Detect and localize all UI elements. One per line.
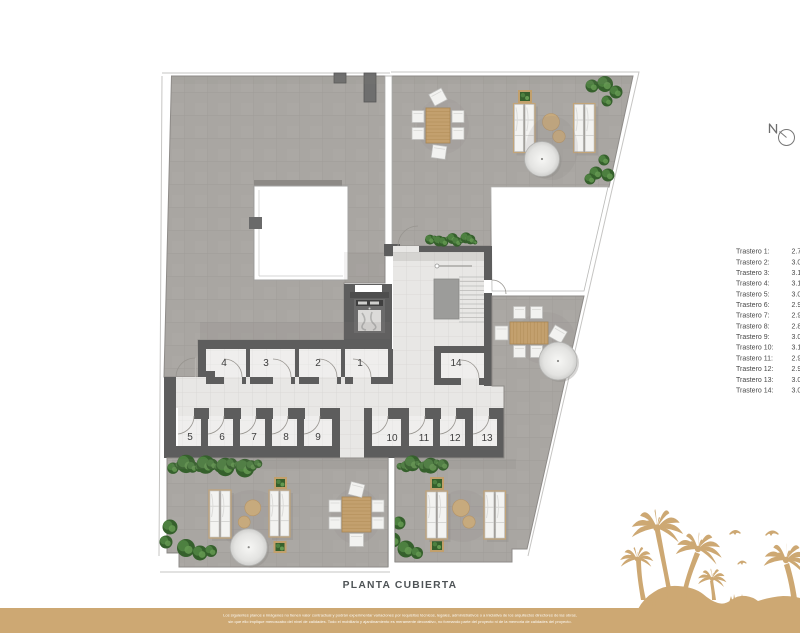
svg-text:Trastero 6:: Trastero 6: [736, 302, 770, 309]
svg-text:8: 8 [283, 432, 289, 443]
svg-text:sin que ello implique menoscab: sin que ello implique menoscabo del nive… [228, 619, 571, 624]
svg-text:4: 4 [221, 358, 227, 369]
svg-text:3.10 m²: 3.10 m² [792, 270, 800, 277]
svg-text:3.10 m²: 3.10 m² [792, 345, 800, 352]
svg-text:2.85 m²: 2.85 m² [792, 323, 800, 330]
svg-text:Trastero 4:: Trastero 4: [736, 281, 770, 288]
svg-text:14: 14 [450, 358, 462, 369]
svg-text:2.90 m²: 2.90 m² [792, 366, 800, 373]
svg-text:13: 13 [481, 433, 493, 444]
svg-text:Trastero 5:: Trastero 5: [736, 291, 770, 298]
svg-text:3: 3 [263, 358, 269, 369]
svg-text:5: 5 [187, 432, 193, 443]
svg-text:Trastero 8:: Trastero 8: [736, 323, 770, 330]
svg-text:3.05 m²: 3.05 m² [792, 377, 800, 384]
svg-text:Trastero 7:: Trastero 7: [736, 313, 770, 320]
svg-text:12: 12 [449, 433, 461, 444]
svg-text:2.70 m²: 2.70 m² [792, 249, 800, 256]
svg-text:Trastero 14:: Trastero 14: [736, 387, 774, 394]
svg-text:Trastero 13:: Trastero 13: [736, 377, 774, 384]
svg-text:9: 9 [315, 432, 321, 443]
svg-text:Trastero 11:: Trastero 11: [736, 355, 773, 362]
svg-text:Trastero 9:: Trastero 9: [736, 334, 770, 341]
svg-text:Trastero 10:: Trastero 10: [736, 345, 774, 352]
svg-text:7: 7 [251, 432, 257, 443]
svg-text:3.05 m²: 3.05 m² [792, 291, 800, 298]
svg-text:2.90 m²: 2.90 m² [792, 302, 800, 309]
svg-text:3.00 m²: 3.00 m² [792, 387, 800, 394]
svg-text:3.05 m²: 3.05 m² [792, 259, 800, 266]
svg-text:11: 11 [419, 433, 430, 444]
svg-text:Los siguientes planos e imágen: Los siguientes planos e imágenes no tien… [223, 613, 577, 618]
svg-text:Trastero 2:: Trastero 2: [736, 259, 770, 266]
svg-text:Trastero 1:: Trastero 1: [736, 249, 770, 256]
svg-text:2: 2 [315, 358, 321, 369]
svg-text:10: 10 [386, 433, 398, 444]
svg-text:2.90 m²: 2.90 m² [792, 313, 800, 320]
svg-text:3.00 m²: 3.00 m² [792, 334, 800, 341]
svg-text:6: 6 [219, 432, 225, 443]
svg-text:Trastero 3:: Trastero 3: [736, 270, 770, 277]
svg-text:2.95 m²: 2.95 m² [792, 355, 800, 362]
svg-text:3.10 m²: 3.10 m² [792, 281, 800, 288]
svg-text:1: 1 [357, 358, 363, 369]
svg-text:Trastero 12:: Trastero 12: [736, 366, 774, 373]
svg-text:PLANTA CUBIERTA: PLANTA CUBIERTA [343, 580, 458, 591]
